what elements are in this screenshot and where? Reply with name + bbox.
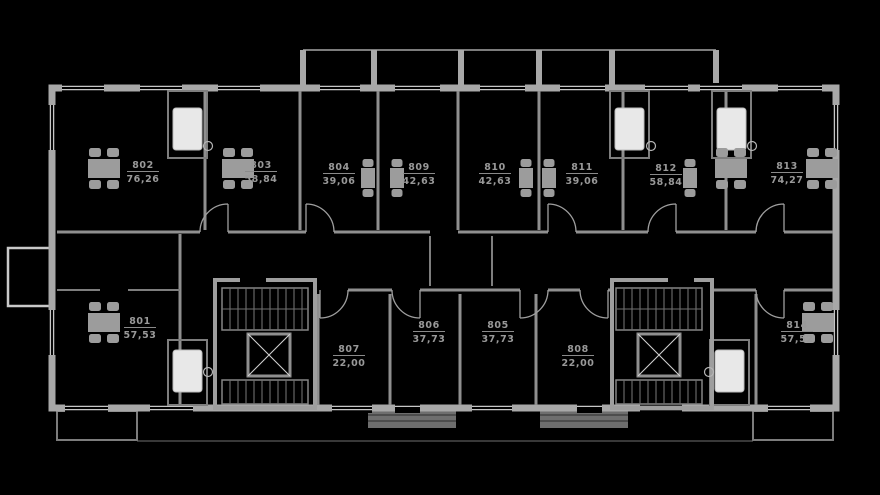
unit-label-802[interactable]: 802 76,26	[126, 160, 159, 185]
unit-number: 808	[567, 344, 589, 355]
stair-core-right	[612, 275, 712, 408]
sink-icon	[647, 142, 656, 151]
balcony-bottom-left	[57, 411, 137, 440]
unit-area: 74,27	[770, 175, 803, 186]
unit-label-808[interactable]: 808 22,00	[561, 344, 594, 369]
balcony-bottom-right	[753, 411, 833, 440]
staircase-icon	[616, 380, 702, 404]
unit-label-804[interactable]: 804 39,06	[322, 162, 355, 187]
bathroom-fixtures	[173, 108, 757, 392]
bathtub-icon	[173, 108, 202, 150]
unit-label-812[interactable]: 812 58,84	[649, 163, 682, 188]
unit-area: 42,63	[478, 176, 511, 187]
bathtub-icon	[715, 350, 744, 392]
unit-label-813[interactable]: 813 74,27	[770, 161, 803, 186]
unit-number: 801	[129, 316, 151, 327]
unit-area: 37,73	[412, 334, 445, 345]
staircase-icon	[222, 380, 308, 404]
unit-area: 42,63	[402, 176, 435, 187]
unit-area: 58,84	[649, 177, 682, 188]
furniture	[88, 148, 838, 343]
unit-area: 39,06	[322, 176, 355, 187]
core-wall	[612, 280, 712, 408]
unit-number: 813	[776, 161, 798, 172]
unit-area: 57,53	[123, 330, 156, 341]
balcony-piers-top	[303, 50, 716, 88]
unit-area: 22,00	[561, 358, 594, 369]
unit-label-801[interactable]: 801 57,53	[123, 316, 156, 341]
bathtub-icon	[615, 108, 644, 150]
unit-label-810[interactable]: 810 42,63	[478, 162, 511, 187]
unit-number: 814	[786, 320, 808, 331]
floor-plan: 801 57,53 802 76,26 803 58,84 804 39,06 …	[0, 0, 880, 495]
unit-label-805[interactable]: 805 37,73	[481, 320, 514, 345]
small-table-icon	[361, 159, 375, 197]
unit-label-809[interactable]: 809 42,63	[402, 162, 435, 187]
balcony-left	[8, 248, 54, 306]
dining-table-icon	[88, 302, 120, 343]
unit-area: 22,00	[332, 358, 365, 369]
dining-table-icon	[88, 148, 120, 189]
unit-number: 809	[408, 162, 430, 173]
dining-table-icon	[806, 148, 838, 189]
stair-core-left	[215, 275, 315, 408]
lobby-walls	[430, 236, 492, 286]
unit-number: 810	[484, 162, 506, 173]
bathtub-icon	[173, 350, 202, 392]
small-table-icon	[542, 159, 556, 197]
bathtub-icon	[717, 108, 746, 150]
unit-area: 57,52	[780, 334, 813, 345]
unit-area: 37,73	[481, 334, 514, 345]
dining-table-icon	[715, 148, 747, 189]
unit-number: 805	[487, 320, 509, 331]
unit-area: 76,26	[126, 174, 159, 185]
small-table-icon	[683, 159, 697, 197]
unit-label-806[interactable]: 806 37,73	[412, 320, 445, 345]
unit-number: 802	[132, 160, 154, 171]
small-table-icon	[519, 159, 533, 197]
floor-plan-canvas: 801 57,53 802 76,26 803 58,84 804 39,06 …	[0, 0, 880, 495]
unit-number: 811	[571, 162, 593, 173]
unit-number: 812	[655, 163, 677, 174]
unit-number: 807	[338, 344, 360, 355]
unit-number: 803	[250, 160, 272, 171]
unit-label-811[interactable]: 811 39,06	[565, 162, 598, 187]
unit-label-807[interactable]: 807 22,00	[332, 344, 365, 369]
unit-number: 806	[418, 320, 440, 331]
unit-number: 804	[328, 162, 350, 173]
unit-area: 58,84	[244, 174, 277, 185]
partitions-upper-units	[205, 91, 726, 230]
unit-area: 39,06	[565, 176, 598, 187]
